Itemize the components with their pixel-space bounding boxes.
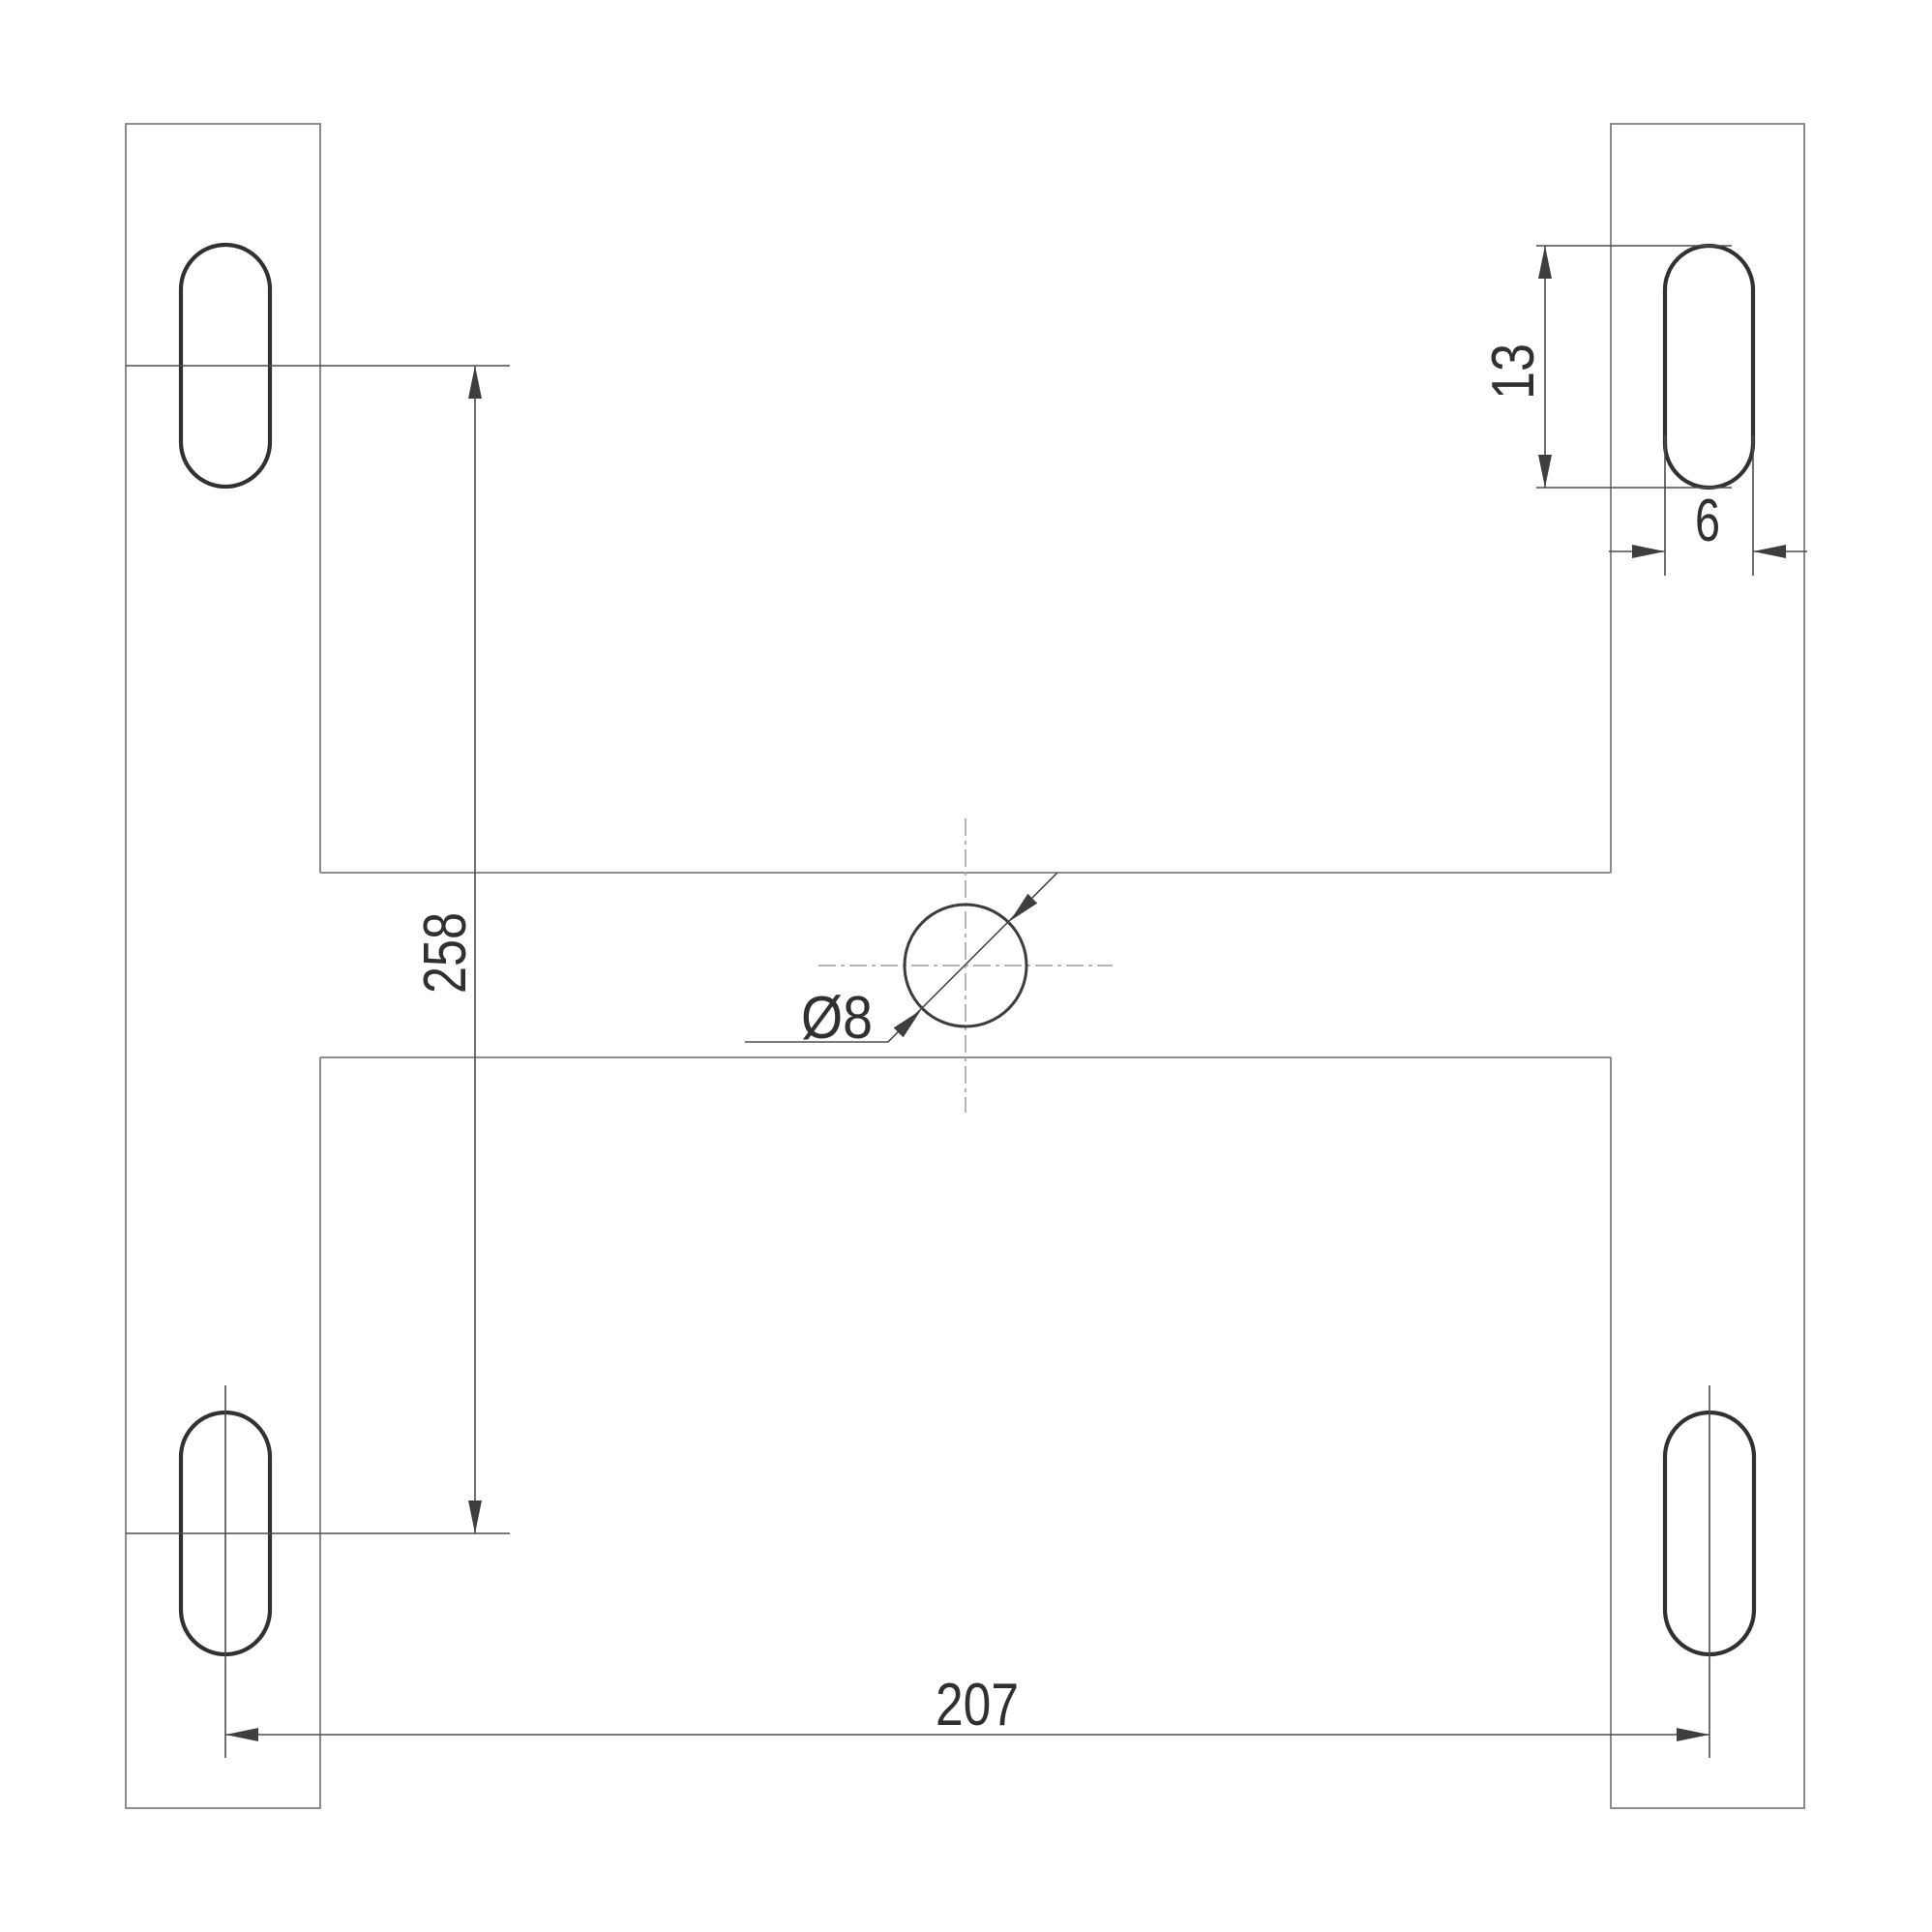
arrowhead-13-top [1538, 246, 1552, 279]
right-bar-outline [1611, 124, 1804, 1808]
technical-drawing: 258 207 13 6 [0, 0, 1932, 1932]
arrowhead-207-left [225, 1728, 258, 1741]
dimension-258: 258 [126, 366, 510, 1533]
arrowhead-6-right [1753, 545, 1786, 558]
left-bar-outline [126, 124, 320, 1808]
arrowhead-207-right [1677, 1728, 1709, 1741]
dim-text-207: 207 [936, 1672, 1019, 1739]
dimension-13: 13 [1480, 246, 1732, 488]
dim-text-6: 6 [1695, 488, 1720, 554]
dim-text-258: 258 [412, 912, 479, 994]
dim-text-13: 13 [1480, 343, 1547, 400]
slot-top-right [1665, 246, 1753, 488]
arrowhead-258-top [468, 366, 482, 399]
drawing-canvas: 258 207 13 6 [0, 0, 1932, 1932]
leader-line-diameter [745, 873, 1057, 1042]
dim-text-diameter-8: Ø8 [801, 985, 873, 1052]
arrowhead-13-bottom [1538, 455, 1552, 488]
dimension-207: 207 [225, 1385, 1709, 1758]
arrowhead-258-bottom [468, 1501, 482, 1533]
arrowhead-6-left [1632, 545, 1665, 558]
dimension-6: 6 [1609, 435, 1807, 576]
dimension-diameter-8: Ø8 [745, 873, 1057, 1052]
